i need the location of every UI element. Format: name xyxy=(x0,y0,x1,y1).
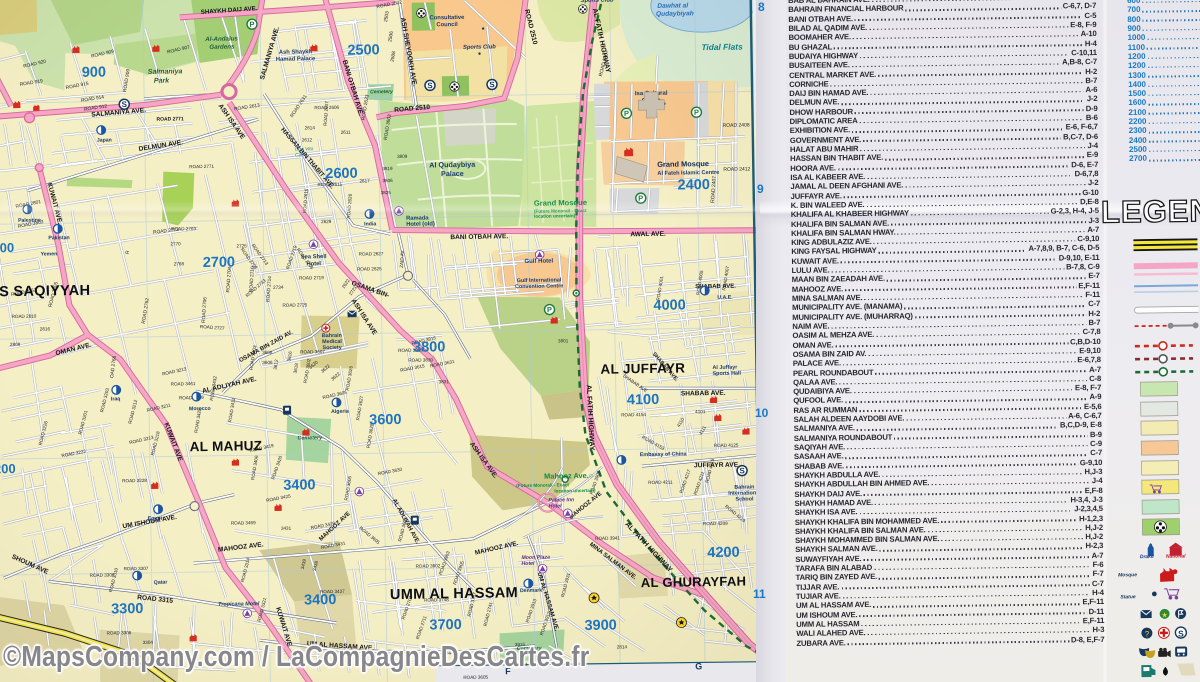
svg-text:3700: 3700 xyxy=(429,617,462,634)
svg-text:2814: 2814 xyxy=(617,644,628,649)
svg-text:Sports Hall: Sports Hall xyxy=(713,371,742,377)
svg-text:ROAD 2703: ROAD 2703 xyxy=(171,226,196,231)
svg-text:3608: 3608 xyxy=(262,350,273,355)
svg-text:2500: 2500 xyxy=(347,42,380,59)
svg-text:Egypt: Egypt xyxy=(148,516,163,522)
svg-text:ROAD 3306: ROAD 3306 xyxy=(90,572,115,577)
svg-text:location uncertain): location uncertain) xyxy=(554,488,596,494)
svg-text:ROAD 3902: ROAD 3902 xyxy=(416,563,441,568)
svg-text:Convention Centre: Convention Centre xyxy=(515,283,563,290)
svg-text:ROAD 2810: ROAD 2810 xyxy=(12,314,37,319)
svg-text:Al Qudaybiya: Al Qudaybiya xyxy=(429,160,476,170)
svg-text:ROAD 2412: ROAD 2412 xyxy=(723,166,750,172)
svg-text:Salmaniya: Salmaniya xyxy=(148,68,183,76)
svg-text:ROAD 3469: ROAD 3469 xyxy=(231,520,256,525)
svg-text:Caf: Caf xyxy=(295,152,303,158)
svg-text:2770: 2770 xyxy=(170,241,181,246)
svg-text:2700: 2700 xyxy=(203,255,236,272)
svg-text:Hotel: Hotel xyxy=(549,503,563,509)
svg-text:900: 900 xyxy=(0,240,14,255)
svg-text:Qatar: Qatar xyxy=(154,580,168,586)
svg-text:India: India xyxy=(364,221,376,227)
svg-text:ROAD 3461: ROAD 3461 xyxy=(171,381,196,386)
svg-text:Al Fateh Islamic Centre: Al Fateh Islamic Centre xyxy=(657,170,719,177)
svg-text:UMM AL HASSAM: UMM AL HASSAM xyxy=(390,585,518,603)
svg-text:S: S xyxy=(1178,629,1184,639)
svg-text:4200: 4200 xyxy=(707,545,740,562)
svg-text:Cemetery: Cemetery xyxy=(370,89,393,95)
svg-text:AWAL AVE.: AWAL AVE. xyxy=(630,231,666,239)
svg-text:Ash Shaykh: Ash Shaykh xyxy=(279,49,313,56)
svg-text:3809: 3809 xyxy=(397,154,408,159)
svg-text:ROAD 4209: ROAD 4209 xyxy=(703,521,728,526)
svg-text:3300: 3300 xyxy=(111,601,144,618)
svg-text:Mahooz Ave.○: Mahooz Ave.○ xyxy=(544,471,593,481)
svg-text:2611: 2611 xyxy=(341,130,351,135)
svg-text:3806: 3806 xyxy=(382,178,393,183)
svg-text:?: ? xyxy=(1145,630,1150,639)
svg-text:3400: 3400 xyxy=(304,592,337,609)
svg-text:3400: 3400 xyxy=(283,477,316,494)
svg-text:Embassy of China: Embassy of China xyxy=(640,451,688,458)
svg-text:ROAD 2771: ROAD 2771 xyxy=(189,164,214,169)
svg-text:Denmark: Denmark xyxy=(520,588,542,594)
svg-text:Hotel: Hotel xyxy=(306,261,321,267)
svg-text:Park: Park xyxy=(154,77,170,84)
svg-text:3800: 3800 xyxy=(413,339,446,356)
svg-text:Gardens: Gardens xyxy=(209,43,235,50)
svg-text:Sea Shell: Sea Shell xyxy=(301,254,327,260)
svg-text:2629: 2629 xyxy=(321,219,332,224)
svg-text:4101: 4101 xyxy=(695,409,706,414)
svg-text:Qudaybiyah: Qudaybiyah xyxy=(656,10,694,18)
svg-text:G: G xyxy=(695,661,702,671)
svg-text:ROAD 2615: ROAD 2615 xyxy=(317,182,342,187)
svg-text:BANI OTBAH AVE.: BANI OTBAH AVE. xyxy=(450,233,508,241)
svg-text:Grand Mosque: Grand Mosque xyxy=(657,159,709,169)
svg-text:★: ★ xyxy=(1161,611,1167,619)
svg-text:AL MAHUZ: AL MAHUZ xyxy=(190,438,263,454)
svg-text:AL JUFFAYR: AL JUFFAYR xyxy=(600,360,685,376)
svg-text:2617: 2617 xyxy=(359,178,370,183)
svg-text:Palace: Palace xyxy=(441,169,464,178)
svg-text:3831: 3831 xyxy=(439,379,450,384)
svg-text:3600: 3600 xyxy=(369,412,402,429)
svg-text:ROAD 3306: ROAD 3306 xyxy=(107,630,132,635)
svg-text:2734: 2734 xyxy=(273,285,284,290)
svg-text:ROAD 3307: ROAD 3307 xyxy=(124,566,149,571)
svg-text:S SAQIYYAH: S SAQIYYAH xyxy=(0,283,90,300)
svg-text:Iraq: Iraq xyxy=(111,396,121,402)
svg-text:Society: Society xyxy=(322,345,341,351)
svg-text:2816: 2816 xyxy=(40,326,51,331)
svg-text:2612: 2612 xyxy=(302,137,313,142)
svg-text:ROAD 4125: ROAD 4125 xyxy=(714,443,739,448)
svg-text:ROAD 2771: ROAD 2771 xyxy=(156,116,184,122)
svg-text:2400: 2400 xyxy=(677,177,710,194)
svg-text:Yemen: Yemen xyxy=(41,251,58,257)
svg-text:4100: 4100 xyxy=(627,392,660,409)
svg-text:Algeria: Algeria xyxy=(331,409,349,415)
svg-text:3431: 3431 xyxy=(281,526,292,531)
svg-text:Sports Club: Sports Club xyxy=(581,0,614,4)
svg-text:Hotel: Hotel xyxy=(521,561,535,567)
svg-text:ROAD 3941: ROAD 3941 xyxy=(595,535,620,540)
svg-text:Pakistan: Pakistan xyxy=(48,235,69,241)
svg-text:ROAD 3228: ROAD 3228 xyxy=(122,478,147,483)
svg-text:ROAD 2719: ROAD 2719 xyxy=(299,275,324,280)
svg-text:JUFFAYR AVE.: JUFFAYR AVE. xyxy=(694,462,740,470)
svg-text:3819: 3819 xyxy=(382,166,393,171)
svg-text:4000: 4000 xyxy=(653,297,686,314)
svg-text:AL GHURAYFAH: AL GHURAYFAH xyxy=(641,574,747,591)
svg-text:ROAD 3605: ROAD 3605 xyxy=(463,675,488,680)
svg-text:200: 200 xyxy=(0,461,16,476)
svg-text:Don Vito: Don Vito xyxy=(295,146,314,152)
svg-text:ROAD 2625: ROAD 2625 xyxy=(357,266,382,271)
svg-text:3825: 3825 xyxy=(381,190,392,195)
svg-text:Japan: Japan xyxy=(97,137,112,143)
svg-text:School: School xyxy=(735,496,754,502)
svg-text:Tropicana Motel: Tropicana Motel xyxy=(218,601,260,608)
svg-text:Gulf Hotel: Gulf Hotel xyxy=(524,259,553,265)
svg-text:(Future Monorail - Exact: (Future Monorail - Exact xyxy=(516,482,569,488)
svg-text:Dawhat al: Dawhat al xyxy=(657,2,688,9)
svg-text:ROAD 4154: ROAD 4154 xyxy=(621,412,646,417)
svg-text:Consultative: Consultative xyxy=(429,15,465,22)
svg-text:Tidal Flats: Tidal Flats xyxy=(701,41,743,52)
svg-text:3900: 3900 xyxy=(584,618,617,635)
svg-text:3606: 3606 xyxy=(262,360,273,365)
svg-text:U.A.E.: U.A.E. xyxy=(717,295,733,301)
svg-text:ROAD 2627: ROAD 2627 xyxy=(359,251,384,256)
svg-text:Al-Andalus: Al-Andalus xyxy=(204,35,238,43)
svg-text:ROAD 2725: ROAD 2725 xyxy=(282,302,307,307)
svg-text:Hotel (old): Hotel (old) xyxy=(406,221,435,227)
svg-text:Palestine: Palestine xyxy=(18,218,41,224)
svg-text:2614: 2614 xyxy=(305,125,316,130)
svg-text:2600: 2600 xyxy=(325,166,358,183)
svg-text:Council: Council xyxy=(436,22,458,28)
svg-text:3801: 3801 xyxy=(558,338,569,343)
svg-text:ROAD 4211: ROAD 4211 xyxy=(648,480,673,485)
svg-text:SHABAB AVE.: SHABAB AVE. xyxy=(681,390,726,398)
svg-text:Sports Club: Sports Club xyxy=(463,44,496,51)
svg-text:2808: 2808 xyxy=(10,342,21,347)
svg-text:ROAD 3830: ROAD 3830 xyxy=(408,357,433,362)
svg-text:Hamad Palace: Hamad Palace xyxy=(276,56,316,63)
svg-text:2768: 2768 xyxy=(174,261,185,266)
svg-text:ROAD 2408: ROAD 2408 xyxy=(723,122,750,128)
svg-text:Cemetery: Cemetery xyxy=(297,435,323,441)
svg-text:900: 900 xyxy=(82,65,106,81)
svg-text:Morocco: Morocco xyxy=(189,406,211,412)
